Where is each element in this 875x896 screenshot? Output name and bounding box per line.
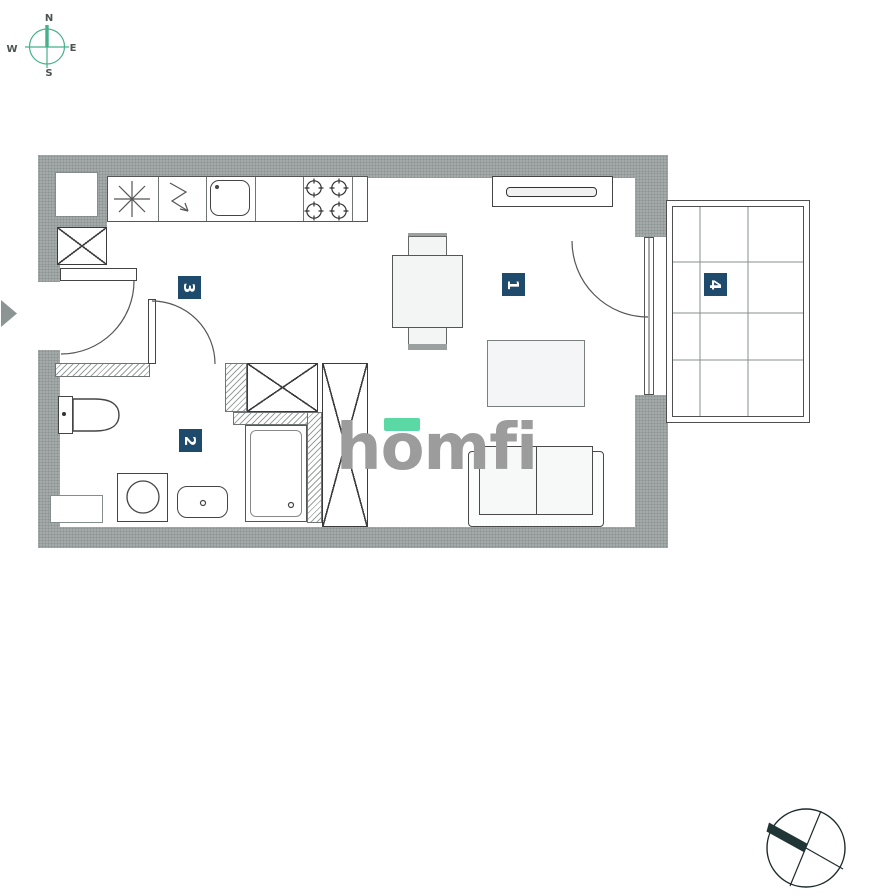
homfi-watermark: homfi [336, 416, 566, 496]
counter-divider [158, 177, 159, 221]
rug [487, 340, 585, 407]
wall-right-lower [635, 395, 668, 548]
entrance-arrow-icon [1, 300, 17, 327]
shaft-cross-entry [57, 227, 107, 265]
wall-top [38, 155, 668, 178]
balcony-window [644, 237, 654, 395]
counter-divider [303, 177, 304, 221]
balcony-railing-inner [672, 206, 804, 417]
surveyor-circle-mark-icon [767, 809, 846, 887]
homfi-logo-accent-bar [384, 418, 420, 431]
partition-bathroom-top-right [225, 363, 247, 412]
room-label-bathroom: 2 [179, 429, 202, 452]
wall-bottom [38, 527, 668, 548]
room-number: 1 [505, 279, 523, 289]
tv-set [506, 187, 597, 197]
wall-niche-top-left [55, 172, 98, 217]
room-number: 2 [182, 435, 200, 445]
shower-tray-inner [250, 430, 302, 517]
partition-under-shaft [233, 412, 318, 425]
entrance-door-leaf [60, 268, 137, 281]
room-label-living-room: 1 [502, 273, 525, 296]
toilet-tank [58, 396, 73, 434]
partition-bathroom-top-left [55, 363, 150, 377]
compass-s-label: S [45, 68, 52, 79]
wall-left-stub [38, 265, 60, 282]
kitchen-sink [210, 180, 250, 216]
shaft-cross-bathroom [247, 363, 318, 412]
bathroom-door-arc [152, 301, 215, 364]
homfi-logo-text: homfi [336, 416, 566, 480]
entrance-door-arc [61, 281, 134, 354]
floorplan-page: { "page": { "background": "#ffffff" }, "… [0, 0, 875, 896]
counter-divider [352, 177, 353, 221]
wall-right-upper [635, 172, 668, 237]
chair-back [408, 344, 447, 350]
compass-e-label: E [70, 43, 77, 54]
washbasin [177, 486, 228, 518]
bathroom-door-leaf [148, 299, 156, 364]
counter-divider [255, 177, 256, 221]
counter-divider [206, 177, 207, 221]
compass-n-label: N [45, 13, 53, 24]
room-label-hall-kitchen: 3 [178, 276, 201, 299]
chair [408, 236, 447, 257]
dining-table [392, 255, 463, 328]
room-number: 3 [181, 282, 199, 292]
room-number: 4 [707, 279, 725, 289]
balcony-door-arc [572, 241, 648, 317]
compass-w-label: W [6, 44, 17, 55]
wall-niche-bottom-left [50, 495, 103, 523]
room-label-balcony: 4 [704, 273, 727, 296]
compass-rose-icon: N E S W [6, 13, 76, 79]
partition-shower-right [307, 412, 322, 523]
washing-machine [117, 473, 168, 522]
